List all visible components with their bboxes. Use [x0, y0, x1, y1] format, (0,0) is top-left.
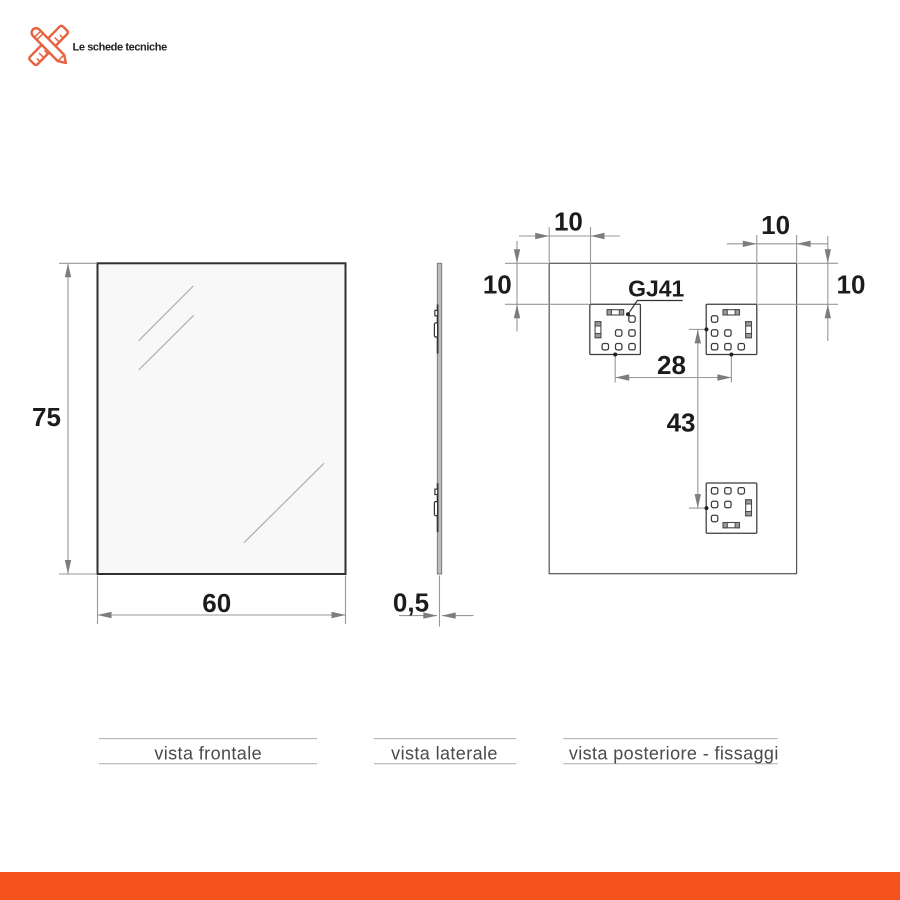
svg-text:75: 75 [32, 402, 61, 432]
svg-text:43: 43 [667, 407, 696, 437]
svg-text:28: 28 [657, 350, 686, 380]
svg-text:0,5: 0,5 [393, 588, 429, 618]
svg-text:10: 10 [837, 269, 866, 299]
svg-text:10: 10 [554, 207, 583, 237]
svg-text:10: 10 [761, 210, 790, 240]
svg-text:60: 60 [202, 588, 231, 618]
svg-text:vista frontale: vista frontale [154, 743, 262, 763]
svg-text:10: 10 [483, 270, 512, 300]
svg-text:GJ41: GJ41 [628, 276, 684, 302]
svg-text:vista laterale: vista laterale [391, 743, 498, 763]
svg-text:Le schede tecniche: Le schede tecniche [73, 41, 168, 53]
svg-text:vista posteriore - fissaggi: vista posteriore - fissaggi [569, 743, 779, 763]
